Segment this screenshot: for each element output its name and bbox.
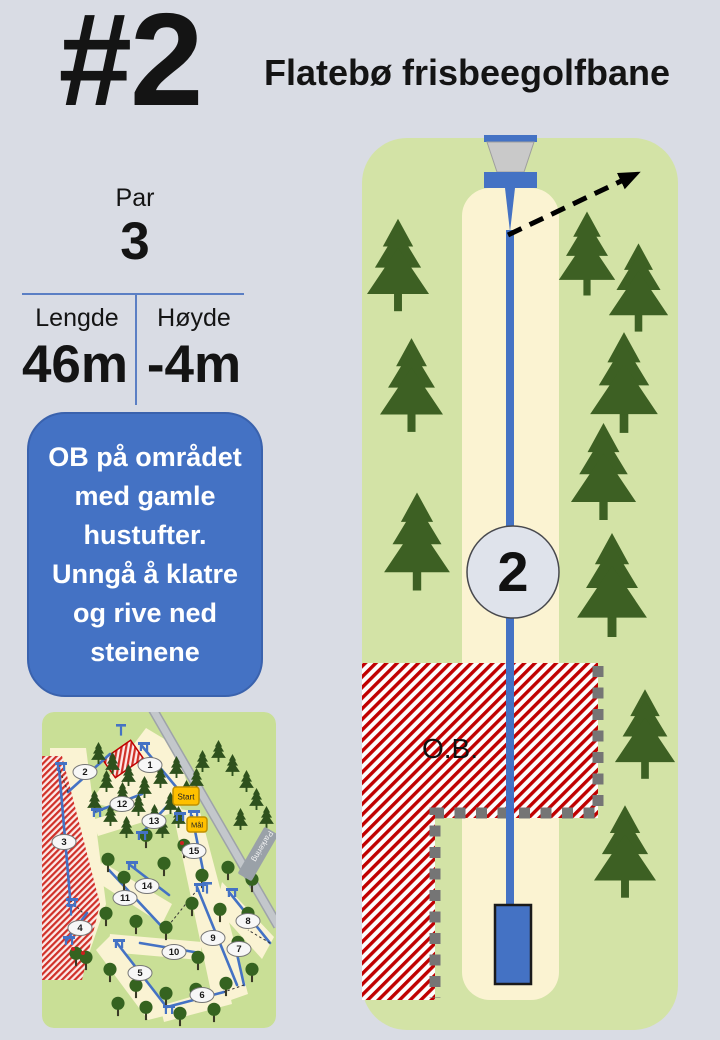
height-label: Høyde bbox=[138, 304, 250, 333]
hole-number-heading: #2 bbox=[30, 0, 230, 135]
start-label: Start bbox=[178, 793, 196, 802]
par-value: 3 bbox=[25, 211, 245, 272]
note-line: OB på området bbox=[48, 438, 242, 477]
minimap-hole-number: 2 bbox=[82, 767, 87, 778]
minimap-goal-badge: Mål bbox=[187, 817, 207, 832]
minimap-hole-number: 3 bbox=[61, 837, 66, 848]
tee-pad bbox=[495, 905, 531, 984]
course-overview-map: 123456789101112131415 Start Mål Parkerin… bbox=[42, 712, 276, 1028]
minimap-hole-number: 15 bbox=[189, 846, 200, 857]
stats-horizontal-divider bbox=[22, 293, 244, 295]
course-title: Flatebø frisbeegolfbane bbox=[264, 52, 670, 94]
ob-note-box: OB på området med gamle hustufter. Unngå… bbox=[27, 412, 263, 697]
minimap-hole-number: 6 bbox=[199, 990, 204, 1001]
note-line: Unngå å klatre bbox=[52, 555, 238, 594]
minimap-hole-number: 5 bbox=[137, 968, 143, 979]
hole-marker-label: 2 bbox=[497, 540, 528, 603]
length-value: 46m bbox=[14, 334, 136, 395]
minimap-hole-number: 4 bbox=[77, 923, 83, 934]
length-label: Lengde bbox=[18, 304, 136, 333]
minimap-hole-number: 14 bbox=[142, 881, 153, 892]
minimap-hole-number: 7 bbox=[236, 944, 241, 955]
note-line: hustufter. bbox=[83, 516, 206, 555]
goal-label: Mål bbox=[191, 821, 203, 830]
minimap-hole-number: 1 bbox=[147, 760, 153, 771]
minimap-hole-number: 10 bbox=[169, 947, 180, 958]
note-line: med gamle bbox=[74, 477, 215, 516]
hole-marker-circle: 2 bbox=[467, 526, 559, 618]
height-value: -4m bbox=[138, 334, 250, 395]
par-label: Par bbox=[25, 184, 245, 213]
hole-diagram: 2 O.B. bbox=[355, 130, 690, 1035]
note-line: steinene bbox=[90, 633, 200, 672]
minimap-hole-number: 11 bbox=[120, 893, 131, 904]
minimap-hole-number: 8 bbox=[245, 916, 250, 927]
ob-area bbox=[362, 818, 435, 1000]
ob-area bbox=[362, 663, 598, 818]
hole-sign-page: #2 Flatebø frisbeegolfbane Par 3 Lengde … bbox=[0, 0, 720, 1040]
minimap-hole-number: 13 bbox=[149, 816, 160, 827]
minimap-hole-number: 9 bbox=[210, 933, 215, 944]
minimap-start-badge: Start bbox=[173, 787, 199, 805]
note-line: og rive ned bbox=[73, 594, 217, 633]
ob-label: O.B. bbox=[422, 733, 478, 764]
minimap-hole-number: 12 bbox=[117, 799, 128, 810]
